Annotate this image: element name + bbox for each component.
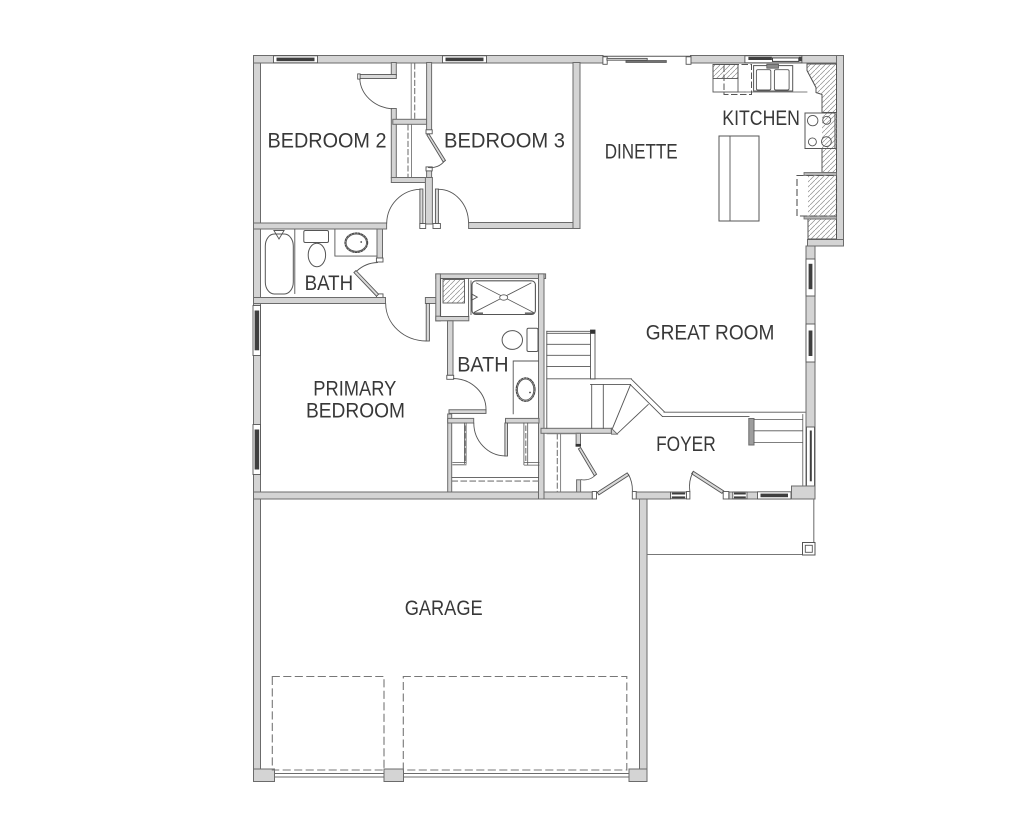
svg-text:DINETTE: DINETTE [605, 139, 678, 163]
svg-text:BATH: BATH [457, 354, 508, 377]
svg-text:BATH: BATH [305, 272, 354, 295]
svg-text:BEDROOM: BEDROOM [306, 399, 405, 423]
svg-text:GREAT ROOM: GREAT ROOM [646, 321, 775, 345]
svg-text:FOYER: FOYER [656, 432, 716, 456]
svg-text:BEDROOM 2: BEDROOM 2 [268, 129, 387, 153]
svg-text:GARAGE: GARAGE [405, 596, 483, 620]
svg-text:BEDROOM 3: BEDROOM 3 [444, 129, 565, 153]
svg-text:KITCHEN: KITCHEN [722, 106, 800, 130]
svg-text:PRIMARY: PRIMARY [313, 377, 396, 401]
